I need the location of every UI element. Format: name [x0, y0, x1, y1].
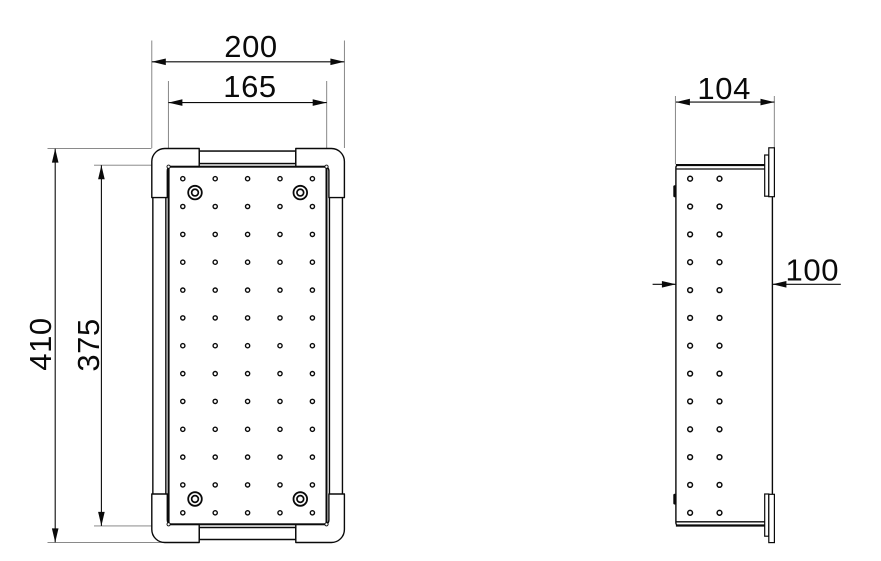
svg-text:200: 200 — [224, 29, 278, 64]
svg-text:410: 410 — [23, 317, 58, 371]
svg-text:104: 104 — [697, 71, 751, 106]
svg-text:165: 165 — [223, 69, 277, 104]
svg-text:375: 375 — [71, 318, 106, 372]
svg-text:100: 100 — [786, 252, 840, 287]
